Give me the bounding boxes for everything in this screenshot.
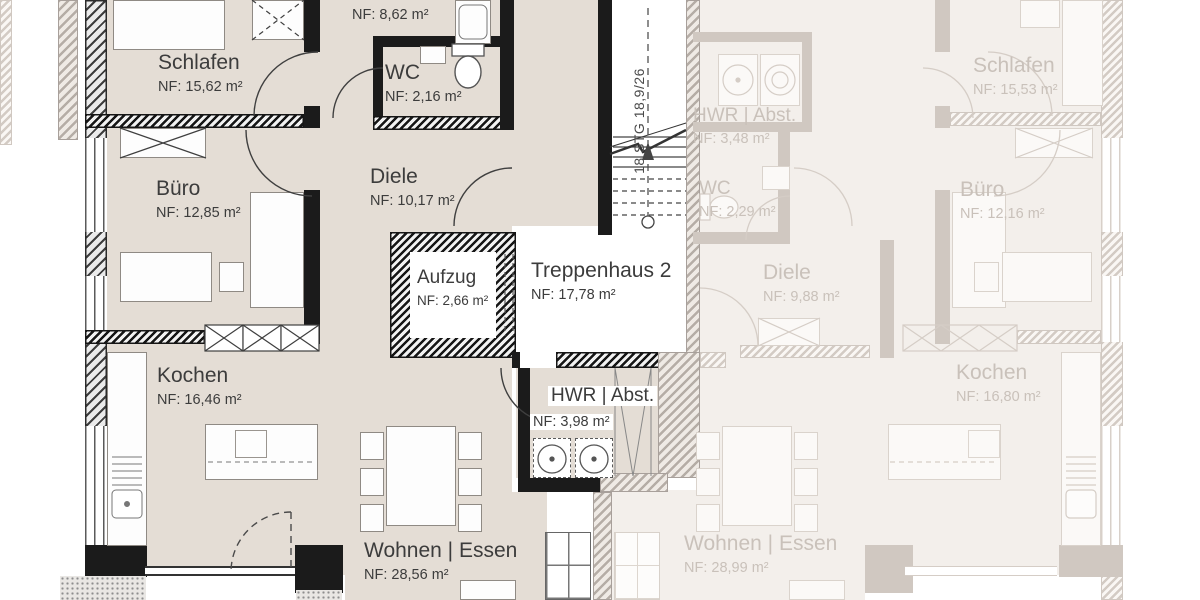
room-label-kochen-right: Kochen NF: 16,80 m²	[956, 362, 1041, 405]
room-label-wc-left: WC NF: 2,16 m²	[385, 62, 462, 105]
room-area: NF: 16,46 m²	[157, 392, 242, 408]
room-name: Bad	[352, 0, 429, 2]
room-area: NF: 9,88 m²	[763, 289, 840, 305]
room-label-kochen-left: Kochen NF: 16,46 m²	[157, 365, 242, 408]
room-label-buero-left: Büro NF: 12,85 m²	[156, 178, 241, 221]
room-name: HWR | Abst.	[548, 386, 657, 406]
room-name: Büro	[960, 179, 1045, 201]
room-area: NF: 12,16 m²	[960, 206, 1045, 222]
room-label-schlafen-right: Schlafen NF: 15,53 m²	[973, 55, 1058, 98]
room-name: WC	[385, 62, 462, 84]
room-label-schlafen-left: Schlafen NF: 15,62 m²	[158, 52, 243, 95]
room-label-hwr-left: HWR | Abst.	[548, 386, 657, 406]
room-name: Aufzug	[417, 268, 488, 288]
kitchen-fixtures-left	[112, 457, 316, 518]
room-label-hwr-right: HWR | Abst. NF: 3,48 m²	[693, 106, 796, 147]
room-area: NF: 2,29 m²	[699, 204, 776, 220]
terrace-door-swing	[231, 512, 291, 572]
room-name: WC	[699, 179, 776, 199]
room-area: NF: 2,16 m²	[385, 89, 462, 105]
room-label-diele-left: Diele NF: 10,17 m²	[370, 166, 455, 209]
room-area-text: NF: 3,98 m²	[530, 414, 613, 430]
room-name: Büro	[156, 178, 241, 200]
room-name: Schlafen	[973, 55, 1058, 77]
room-label-wc-right: WC NF: 2,29 m²	[699, 179, 776, 220]
room-name: Wohnen | Essen	[364, 540, 517, 562]
room-name: Schlafen	[158, 52, 243, 74]
room-name: Wohnen | Essen	[684, 533, 837, 555]
room-name: Diele	[763, 262, 840, 284]
room-label-wohnen-left: Wohnen | Essen NF: 28,56 m²	[364, 540, 517, 583]
room-name-text: HWR | Abst.	[548, 386, 657, 406]
room-area: NF: 28,56 m²	[364, 567, 517, 583]
room-label-wohnen-right: Wohnen | Essen NF: 28,99 m²	[684, 533, 837, 576]
room-label-bad-left: Bad NF: 8,62 m²	[352, 0, 429, 23]
room-area: NF: 3,48 m²	[693, 131, 796, 147]
room-label-aufzug: Aufzug NF: 2,66 m²	[417, 268, 488, 308]
door-arcs-left	[246, 52, 556, 423]
room-area: NF: 15,53 m²	[973, 82, 1058, 98]
room-name: Kochen	[956, 362, 1041, 384]
room-label-diele-right: Diele NF: 9,88 m²	[763, 262, 840, 305]
floor-plan: Schlafen NF: 15,62 m² Bad NF: 8,62 m² WC…	[0, 0, 1200, 600]
room-area: NF: 28,99 m²	[684, 560, 837, 576]
room-area: NF: 15,62 m²	[158, 79, 243, 95]
room-label-buero-right: Büro NF: 12,16 m²	[960, 179, 1045, 222]
room-name: HWR | Abst.	[693, 106, 796, 126]
room-area: NF: 2,66 m²	[417, 293, 488, 308]
room-area: NF: 8,62 m²	[352, 7, 429, 23]
room-area-hwr-left: NF: 3,98 m²	[530, 414, 613, 430]
room-area: NF: 12,85 m²	[156, 205, 241, 221]
laundry-circles-left	[538, 445, 608, 473]
room-name: Diele	[370, 166, 455, 188]
stair-annotation: 18 STG 18,9/26	[631, 51, 649, 191]
room-name: Kochen	[157, 365, 242, 387]
room-label-treppenhaus: Treppenhaus 2 NF: 17,78 m²	[531, 260, 672, 303]
elevator-door-dashes	[505, 254, 513, 336]
room-name: Treppenhaus 2	[531, 260, 672, 282]
room-area: NF: 17,78 m²	[531, 287, 672, 303]
room-area: NF: 16,80 m²	[956, 389, 1041, 405]
room-area: NF: 10,17 m²	[370, 193, 455, 209]
room-area: NF: 3,98 m²	[530, 414, 613, 430]
